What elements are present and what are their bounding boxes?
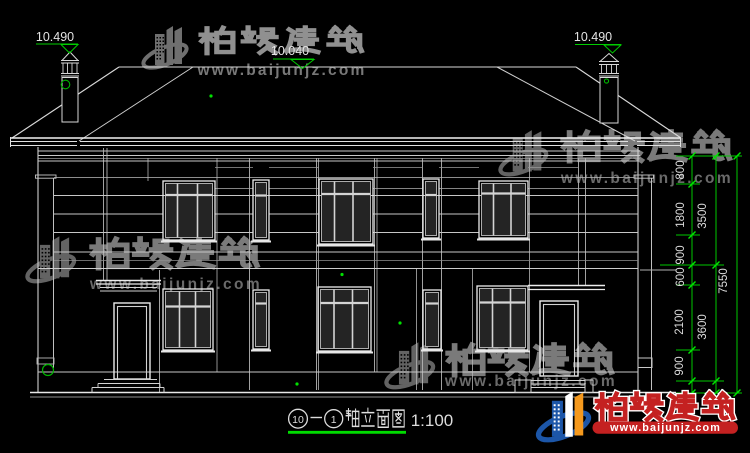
svg-text:www.baijunjz.com: www.baijunjz.com [197,62,367,79]
svg-text:7550: 7550 [718,268,730,294]
svg-text:3600: 3600 [697,314,709,340]
svg-text:900: 900 [675,245,687,264]
svg-text:3500: 3500 [697,203,709,229]
svg-text:600: 600 [675,267,687,286]
svg-text:900: 900 [674,356,686,375]
svg-text:800: 800 [675,160,687,179]
svg-text:1: 1 [331,414,337,426]
svg-text:10.040: 10.040 [271,44,309,58]
svg-text:www.baijunjz.com: www.baijunjz.com [609,422,721,434]
svg-text:10.490: 10.490 [36,30,74,44]
svg-text:10.490: 10.490 [574,30,612,44]
svg-text:2100: 2100 [674,309,686,335]
svg-text:1:100: 1:100 [411,411,454,430]
svg-text:10: 10 [292,414,304,426]
svg-text:1800: 1800 [675,202,687,228]
